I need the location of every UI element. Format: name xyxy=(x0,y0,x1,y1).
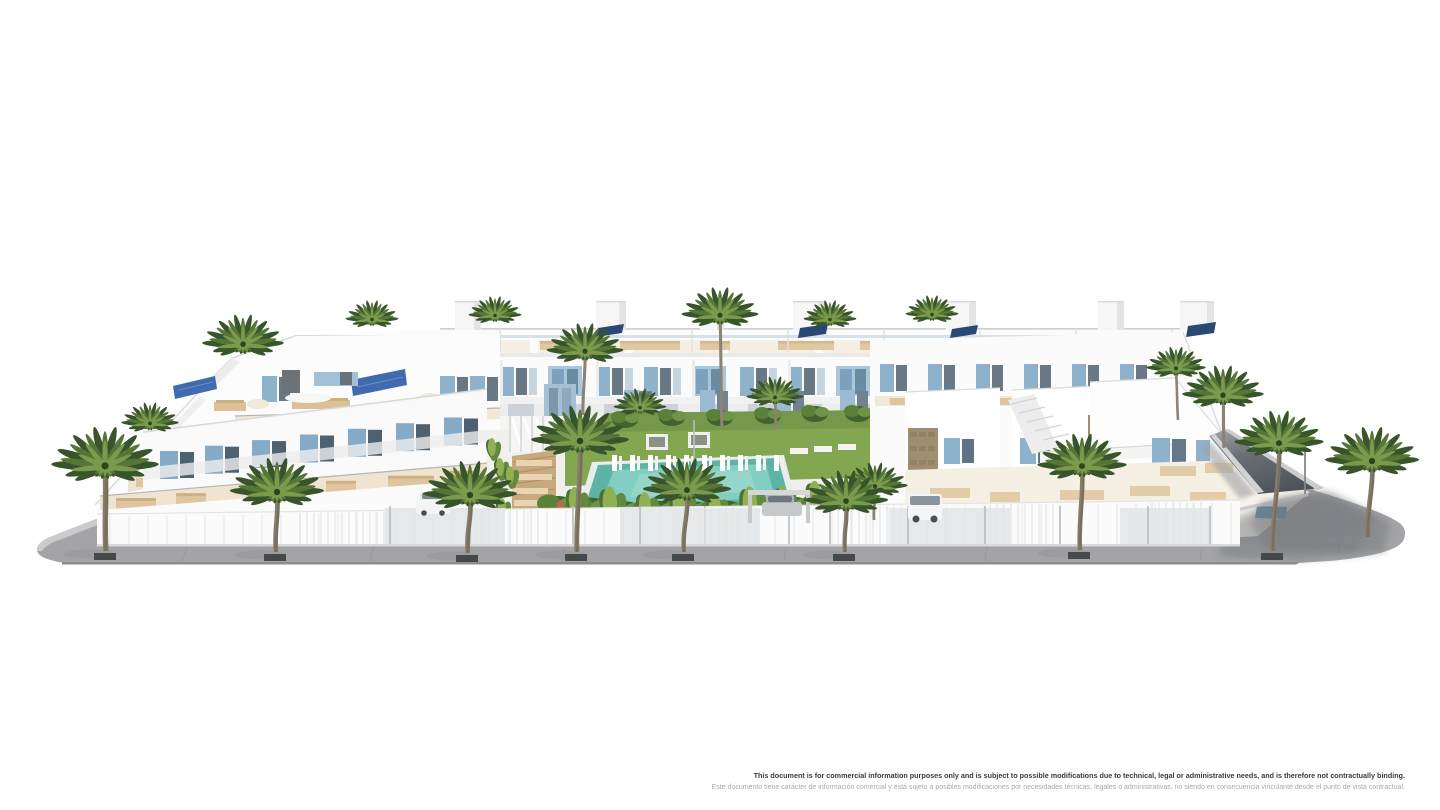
svg-text:This document is for commercia: This document is for commercial informat… xyxy=(754,771,1405,780)
svg-text:Este documento tiene carácter: Este documento tiene carácter de informa… xyxy=(712,784,1405,791)
